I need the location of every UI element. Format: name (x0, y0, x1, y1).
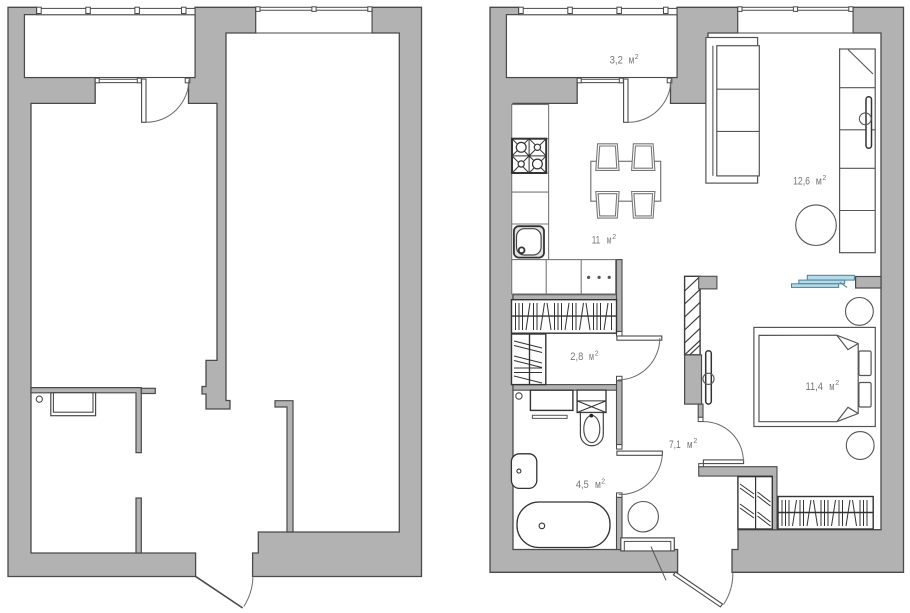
svg-text:3,2: 3,2 (610, 55, 623, 67)
svg-text:2: 2 (612, 234, 616, 241)
svg-text:м: м (595, 479, 601, 491)
svg-text:2: 2 (635, 54, 639, 61)
svg-text:2: 2 (822, 175, 826, 182)
svg-text:м: м (687, 439, 693, 451)
svg-text:2: 2 (693, 438, 697, 445)
svg-text:м: м (816, 176, 822, 188)
svg-text:м: м (589, 351, 594, 363)
svg-text:12,6: 12,6 (793, 176, 810, 188)
svg-text:м: м (829, 381, 834, 393)
svg-text:2: 2 (835, 380, 839, 387)
svg-text:11: 11 (592, 234, 601, 246)
svg-text:7,1: 7,1 (669, 439, 681, 451)
svg-text:2: 2 (595, 351, 599, 358)
svg-text:2,8: 2,8 (570, 351, 583, 363)
svg-text:м: м (629, 55, 635, 67)
svg-text:11,4: 11,4 (806, 381, 824, 393)
svg-text:м: м (607, 234, 612, 246)
svg-text:2: 2 (601, 479, 605, 486)
svg-text:4,5: 4,5 (576, 479, 589, 491)
